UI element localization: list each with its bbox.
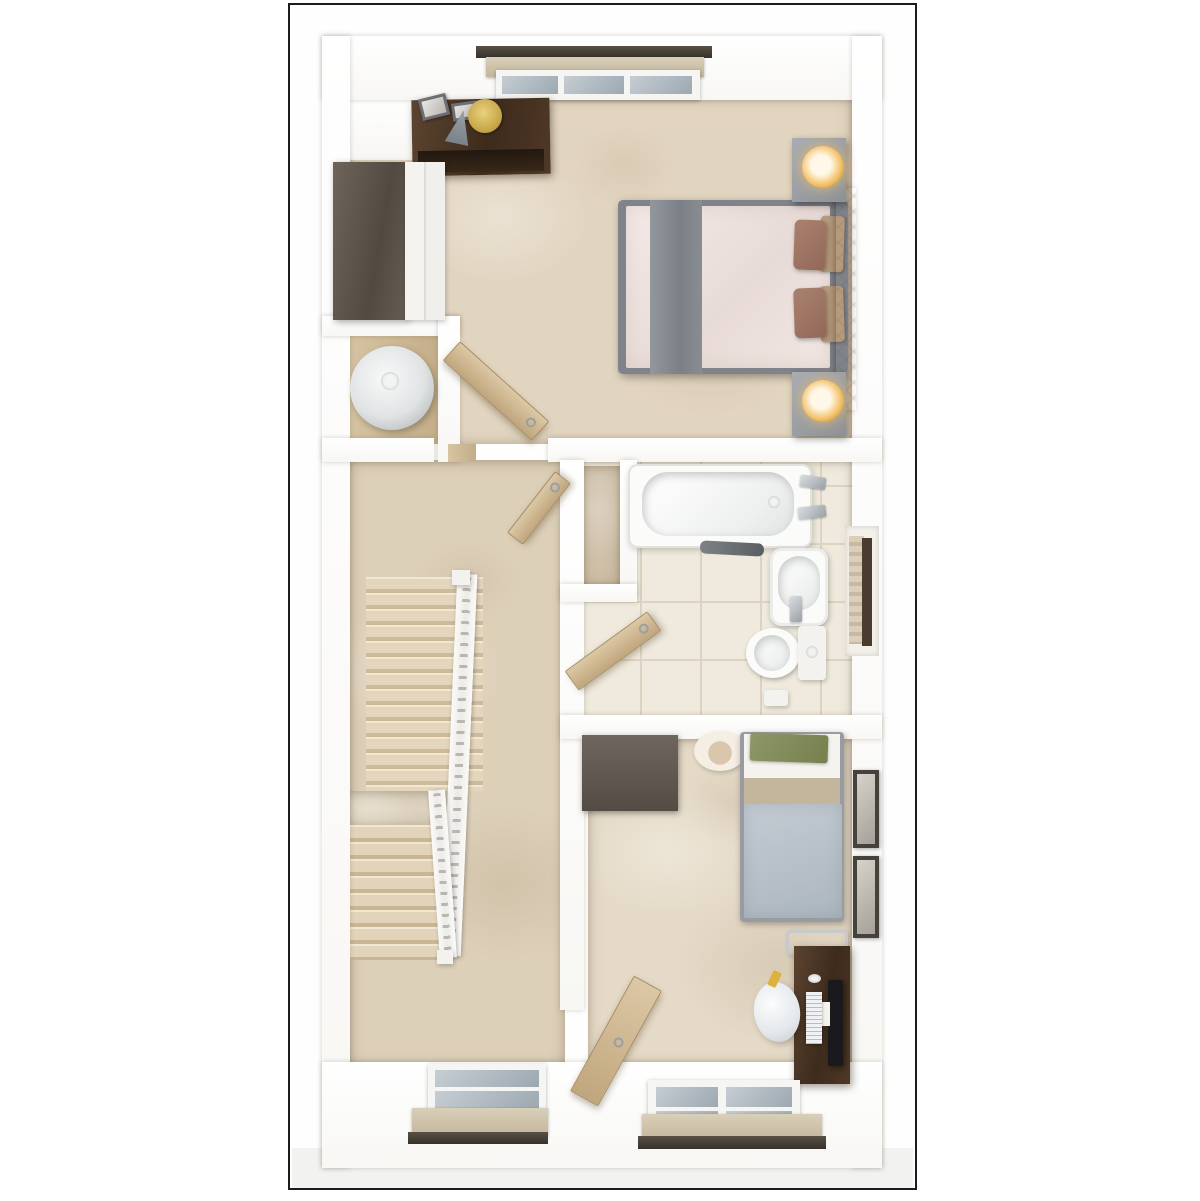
- single-bed-green-throw: [750, 733, 829, 764]
- stair-newel-top: [452, 570, 470, 585]
- dresser-gold-tray: [468, 99, 502, 133]
- window-bottom-right-pane-1: [656, 1087, 718, 1107]
- window-top-pane-1: [502, 76, 558, 94]
- single-bed-duvet: [744, 804, 842, 918]
- single-bed-tan-band: [744, 778, 840, 806]
- double-bed-runner: [650, 200, 702, 374]
- toilet-flush: [806, 646, 818, 658]
- window-top-pane-3: [630, 76, 692, 94]
- toilet-paper-roll: [764, 690, 788, 706]
- water-cylinder-cap: [381, 372, 399, 390]
- towel-radiator-edge: [862, 538, 872, 646]
- window-bottom-left-pane-2: [435, 1091, 539, 1109]
- wall-photo-frame-2: [853, 856, 879, 938]
- door-threshold-master: [448, 444, 476, 462]
- wall-niche-bottom: [560, 584, 637, 602]
- double-bed-pillow-2: [793, 287, 827, 338]
- wardrobe-doors: [405, 162, 445, 320]
- wardrobe-top-panel: [333, 162, 407, 320]
- nightstand-north-lamp: [802, 146, 844, 188]
- toilet-seat: [754, 635, 790, 671]
- stairs-lower-flight: [350, 825, 445, 960]
- desk-monitor: [828, 980, 843, 1066]
- desk-keyboard: [806, 992, 822, 1044]
- window-bottom-right-pane-2: [726, 1087, 792, 1107]
- window-bottom-left-rail: [408, 1132, 548, 1144]
- double-bed-pillow-1: [793, 219, 827, 270]
- stair-niche-floor: [582, 466, 620, 586]
- wall-bedroom-landing-right: [548, 438, 882, 462]
- window-bottom-left-pane-1: [435, 1070, 539, 1087]
- stair-newel-bottom: [437, 950, 453, 964]
- wall-photo-frame-1: [853, 770, 879, 848]
- desk-mouse: [808, 974, 821, 983]
- straw-hat: [694, 731, 746, 771]
- wall-cupboard-right: [438, 316, 460, 462]
- wall-bedroom-landing-left: [322, 438, 434, 462]
- sink-tap: [790, 596, 802, 622]
- stage: [0, 0, 1200, 1201]
- window-bottom-right-rail: [638, 1136, 826, 1149]
- bedroom2-wardrobe: [582, 735, 678, 811]
- nightstand-south-lamp: [802, 380, 844, 422]
- bathtub-drain: [768, 496, 780, 508]
- window-top-pane-2: [564, 76, 624, 94]
